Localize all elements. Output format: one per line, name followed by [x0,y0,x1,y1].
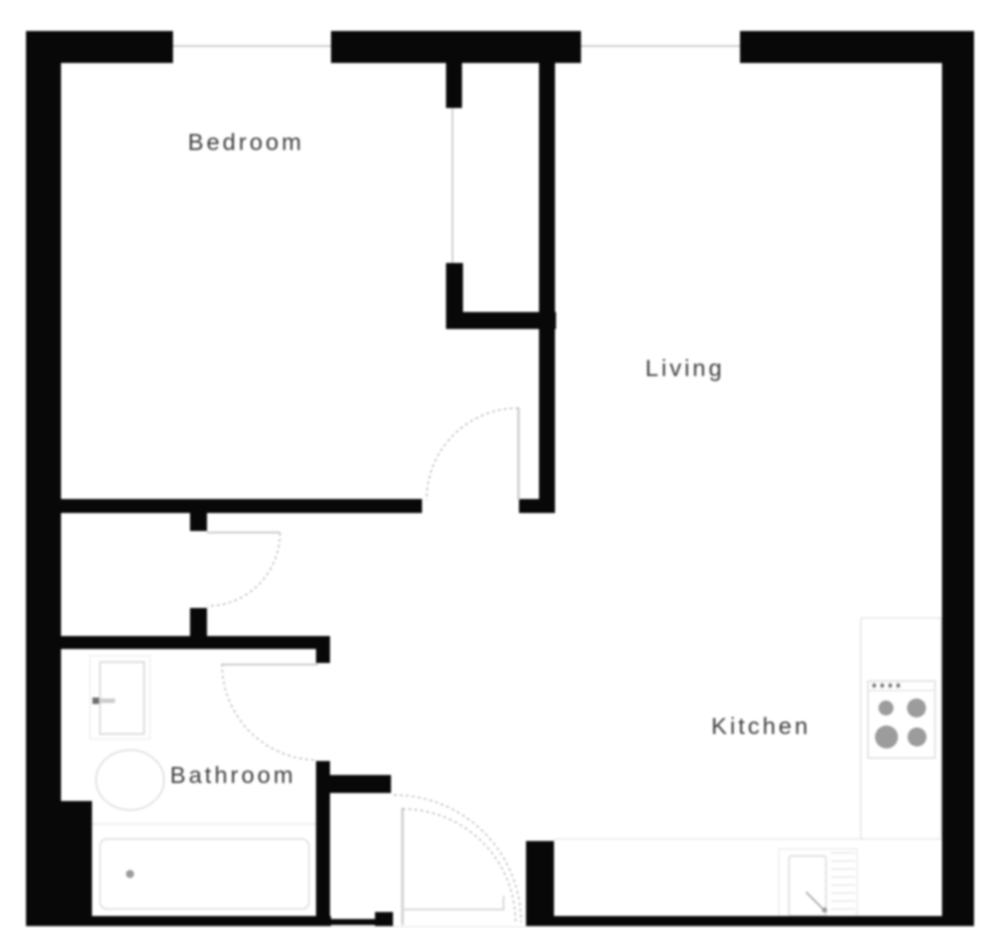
svg-text:Bathroom: Bathroom [170,762,296,788]
svg-text:Kitchen: Kitchen [711,713,810,739]
svg-text:Living: Living [645,355,724,381]
svg-text:Bedroom: Bedroom [188,129,304,155]
